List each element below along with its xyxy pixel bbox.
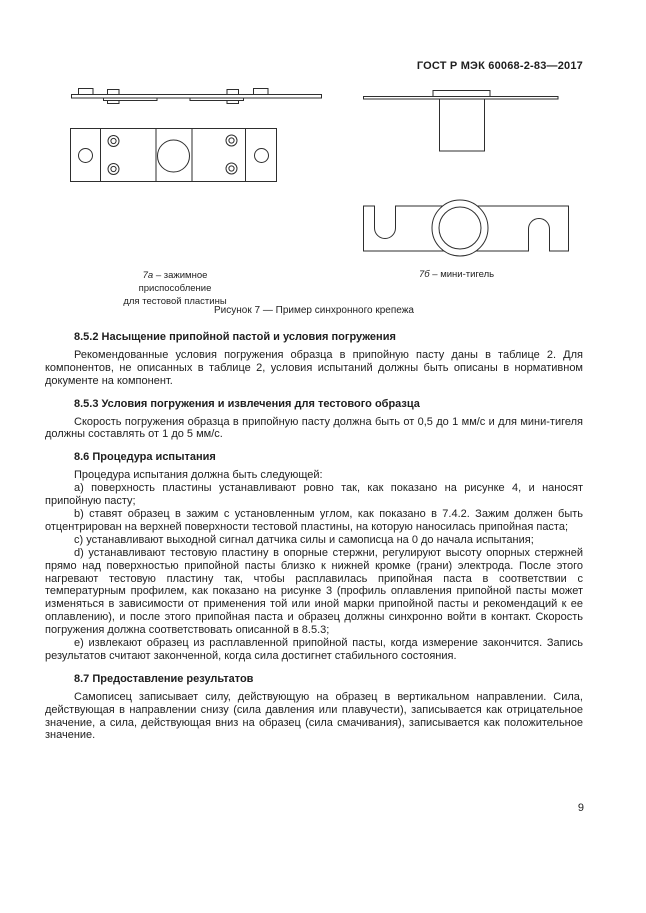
figure-7-main-caption: Рисунок 7 — Пример синхронного крепежа [45,305,583,316]
page-number: 9 [578,802,584,814]
figure-7b-caption: 7б – мини-тигель [419,268,494,281]
section-heading: 8.5.3 Условия погружения и извлечения дл… [45,398,583,411]
list-item-e: e) извлекают образец из расплавленной пр… [45,637,583,663]
document-body: 8.5.2 Насыщение припойной пастой и услов… [45,331,583,742]
figure-7a-caption: 7а – зажимное приспособление для тестово… [105,269,245,308]
figure-7b-top-view-drawing [364,200,569,256]
section-8-6: 8.6 Процедура испытания Процедура испыта… [45,451,583,663]
section-heading: 8.7 Предоставление результатов [45,673,583,686]
list-item-d: d) устанавливают тестовую пластину в опо… [45,547,583,637]
list-item-c: c) устанавливают выходной сигнал датчика… [45,534,583,547]
section-heading: 8.5.2 Насыщение припойной пастой и услов… [45,331,583,344]
figure-7b-side-view-drawing [364,91,559,152]
section-8-7: 8.7 Предоставление результатов Самописец… [45,673,583,743]
section-heading: 8.6 Процедура испытания [45,451,583,464]
figure-7b-label: 7б [419,269,430,280]
section-8-5-3: 8.5.3 Условия погружения и извлечения дл… [45,398,583,442]
paragraph: Процедура испытания должна быть следующе… [45,469,583,482]
paragraph: Скорость погружения образца в припойную … [45,416,583,442]
document-page: ГОСТ Р МЭК 60068-2-83—2017 [0,0,646,913]
list-item-b: b) ставят образец в зажим с установленны… [45,508,583,534]
figure-7-drawings [0,0,646,270]
paragraph: Рекомендованные условия погружения образ… [45,349,583,388]
figure-7a-label: 7а [143,270,154,281]
section-8-5-2: 8.5.2 Насыщение припойной пастой и услов… [45,331,583,388]
list-item-a: a) поверхность пластины устанавливают ро… [45,482,583,508]
figure-7a-side-view-drawing [72,89,322,104]
figure-7a-top-view-drawing [71,129,277,182]
paragraph: Самописец записывает силу, действующую н… [45,691,583,743]
